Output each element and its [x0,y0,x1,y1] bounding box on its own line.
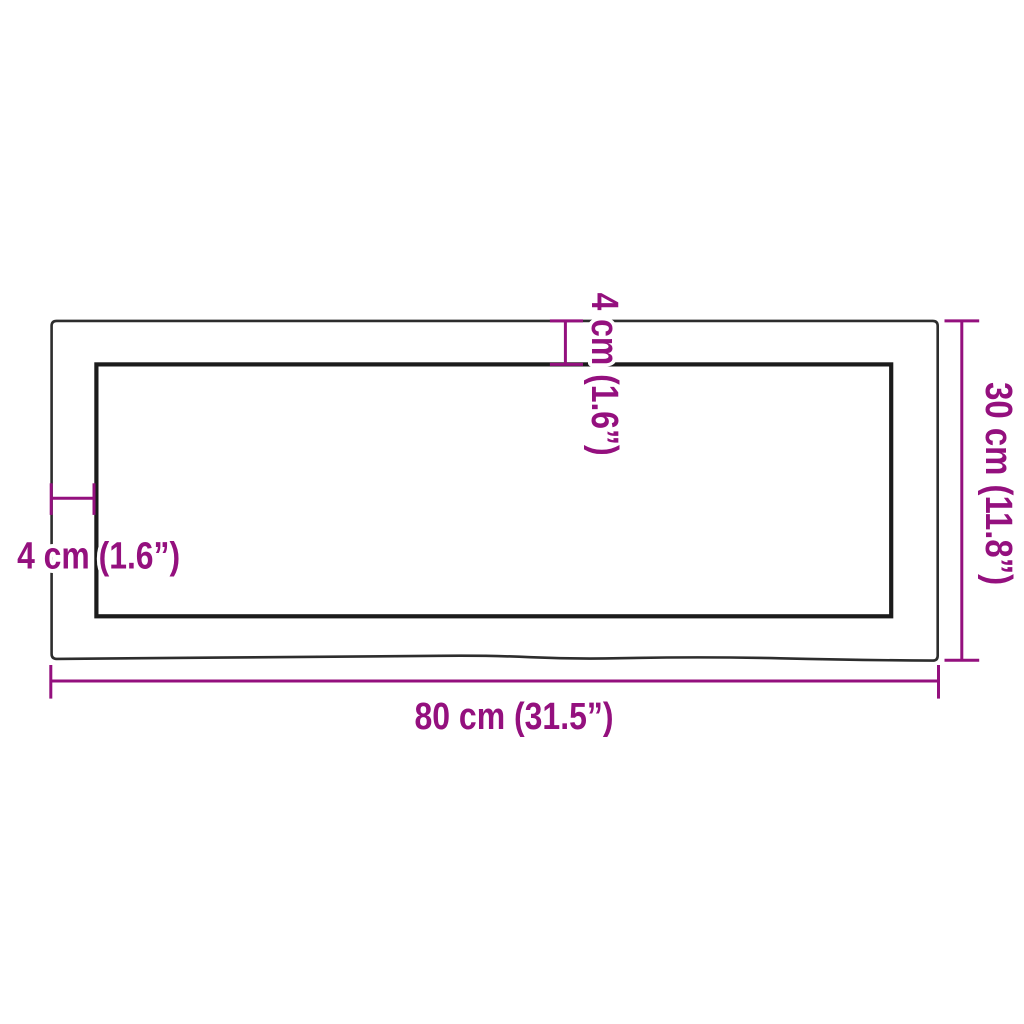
svg-text:30 cm (11.8”): 30 cm (11.8”) [977,382,1019,585]
svg-text:80 cm (31.5”): 80 cm (31.5”) [415,696,614,738]
svg-text:4 cm (1.6”): 4 cm (1.6”) [583,293,625,456]
svg-text:4 cm (1.6”): 4 cm (1.6”) [17,535,180,577]
